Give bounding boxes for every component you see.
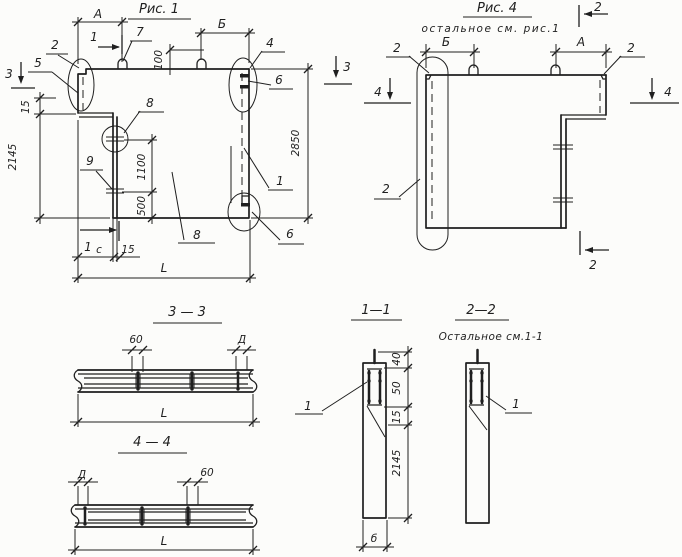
sec11-dim-2145-label: 2145	[391, 449, 403, 476]
sec22-column	[466, 350, 489, 523]
fig1-joint-tab-top-1	[240, 74, 250, 78]
fig4-section-4-left-label: 4	[374, 85, 382, 99]
sec33-title: 3 — 3	[168, 305, 206, 320]
section-1-1: 1—1 40 50 15 2145 б 1	[295, 303, 412, 552]
sec33-dim-d-label: Д	[237, 334, 246, 346]
fig1-section-mark-3-right: 3	[324, 56, 352, 84]
fig1-pos-1-label: 1	[276, 174, 284, 188]
fig1-section-3-right-label: 3	[343, 60, 351, 74]
sec44-dim-d-label: Д	[77, 469, 86, 481]
fig4-pos-2-side-label: 2	[382, 182, 390, 196]
sec11-column	[363, 350, 386, 518]
fig1-pos-8-detail-label: 8	[146, 96, 154, 110]
fig1-dim-b-label: Б	[218, 17, 226, 31]
fig1-dim-15-left-label: 15	[20, 100, 32, 114]
fig1-dim-l-label: L	[161, 261, 168, 275]
fig1-section-mark-3-left: 3	[5, 62, 35, 88]
sec11-dim-40-label: 40	[391, 352, 403, 366]
sec22-title: 2—2	[466, 303, 496, 318]
fig1-pos-4-label: 4	[266, 36, 274, 50]
section-4-4: 4 — 4 Д 60 L	[68, 435, 260, 555]
fig1-dim-2850-label: 2850	[290, 129, 302, 156]
fig1-pos-7-label: 7	[136, 25, 144, 39]
sec11-dim-15-label: 15	[391, 410, 403, 424]
fig1-section-1-bottom-label: 1	[84, 240, 92, 254]
fig4-pos-2-top-left-label: 2	[393, 41, 401, 55]
fig1-dim-ticks	[36, 18, 312, 282]
fig1-dim-a-label: А	[93, 7, 102, 21]
sec22-subtitle: Остальное см.1-1	[439, 331, 544, 343]
fig4-position-leaders	[374, 56, 645, 199]
fig4-dim-a-label: А	[576, 35, 585, 49]
fig1-joint-notch-bottom	[242, 196, 249, 204]
fig1-dim-500-label: 500	[136, 196, 148, 216]
sec44-dim-60-label: 60	[200, 467, 214, 479]
fig4-section-mark-2-bottom: 2	[580, 231, 609, 272]
fig1-section-mark-1-top: 1	[90, 30, 122, 54]
sec11-dim-50-label: 50	[391, 381, 403, 395]
fig4-title: Рис. 4	[477, 1, 517, 16]
sec11-dim-width-label: б	[371, 533, 378, 545]
sec33-slab	[74, 370, 257, 392]
fig1-pos-6-top-label: 6	[275, 73, 283, 87]
figure-4: Рис. 4 остальное см. рис.1 2	[364, 0, 679, 272]
fig1-section-3-left-label: 3	[5, 67, 13, 81]
fig4-pos-2-top-right-label: 2	[627, 41, 635, 55]
sec11-pos-1-label: 1	[304, 399, 312, 413]
fig1-panel-outline	[78, 59, 250, 218]
fig1-pos-9-label: 9	[86, 154, 94, 168]
fig1-dimension-lines	[34, 17, 313, 283]
fig4-section-4-right-label: 4	[664, 85, 672, 99]
fig1-dim-1100-label: 1100	[136, 153, 148, 180]
fig1-pos-6-bottom-label: 6	[286, 227, 294, 241]
sec44-dim-l-label: L	[161, 534, 168, 548]
figure-1: Рис. 1	[5, 2, 352, 283]
sec11-title: 1—1	[361, 303, 391, 318]
fig4-section-mark-4-right: 4	[630, 78, 679, 103]
fig1-joint-tab-bottom	[241, 203, 250, 207]
fig1-lifting-loop-right	[197, 59, 206, 69]
fig1-dim-100-label: 100	[153, 50, 165, 70]
sec22-position-leader	[486, 396, 532, 413]
fig4-dim-b-label: Б	[442, 35, 450, 49]
sec22-pos-1-label: 1	[512, 397, 520, 411]
fig4-section-2-top-label: 2	[594, 0, 602, 14]
fig4-section-mark-4-left: 4	[364, 78, 411, 103]
fig4-section-mark-2-top: 2	[579, 0, 608, 27]
fig1-detail-callouts	[68, 58, 260, 231]
fig1-pos-5-label: 5	[34, 56, 42, 70]
sec33-dim-l-label: L	[161, 406, 168, 420]
fig1-joint-tab-top-2	[240, 85, 250, 89]
fig1-pos-8-face-label: 8	[193, 228, 201, 242]
fig1-dim-2145-label: 2145	[7, 143, 19, 170]
section-3-3: 3 — 3 60 Д L	[70, 305, 260, 427]
fig1-section-1-top-label: 1	[90, 30, 98, 44]
sec11-dimension-lines	[356, 346, 412, 552]
fig4-rib-ticks	[553, 145, 573, 202]
sec44-title: 4 — 4	[133, 435, 171, 450]
section-2-2: 2—2 Остальное см.1-1 1	[439, 303, 544, 523]
fig4-subtitle: остальное см. рис.1	[422, 23, 561, 35]
fig4-section-2-bottom-label: 2	[589, 258, 597, 272]
fig1-dim-15-bottom-label: 15	[121, 244, 135, 256]
sec33-dim-60-label: 60	[129, 334, 143, 346]
fig1-pos-2-label: 2	[51, 38, 59, 52]
fig1-title: Рис. 1	[139, 2, 179, 17]
fig4-panel-outline	[426, 65, 606, 228]
drawing-sheet: Рис. 1	[0, 0, 682, 557]
technical-drawing-canvas: Рис. 1	[0, 0, 682, 557]
sec44-slab	[71, 505, 257, 527]
fig1-dim-c-label: с	[96, 244, 102, 256]
